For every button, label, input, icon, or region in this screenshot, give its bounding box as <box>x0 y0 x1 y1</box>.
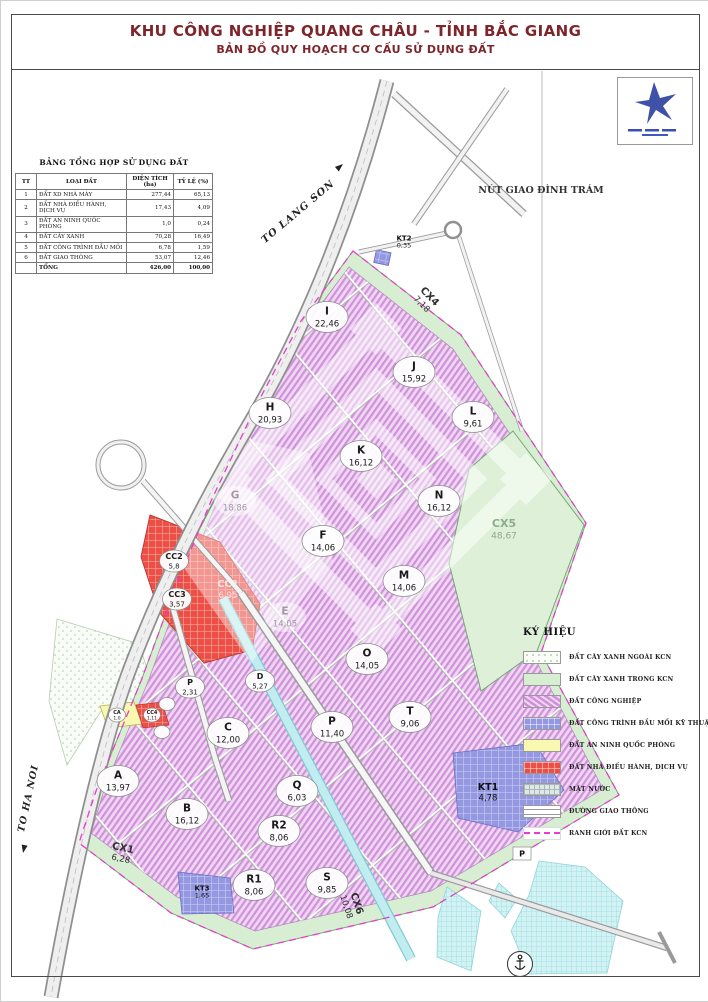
svg-text:CC4: CC4 <box>147 710 158 716</box>
svg-text:16,12: 16,12 <box>349 459 373 469</box>
svg-text:P: P <box>328 716 336 728</box>
svg-text:B: B <box>183 803 191 815</box>
parcel-i: I22,46 <box>306 302 348 333</box>
svg-text:S: S <box>323 872 331 884</box>
legend-swatch-industrial <box>523 695 561 708</box>
svg-text:4,78: 4,78 <box>479 794 498 804</box>
summary-cell <box>16 263 37 273</box>
summary-cell: 5 <box>16 242 37 252</box>
summary-row: 1ĐẤT XD NHÀ MÁY277,4465,13 <box>16 190 213 200</box>
legend-item-8: RANH GIỚI ĐẤT KCN <box>523 822 701 844</box>
svg-text:14,06: 14,06 <box>392 584 416 594</box>
to-ha-noi-arrow <box>20 845 28 854</box>
summary-cell: 6,78 <box>127 242 174 252</box>
legend-swatch-service <box>523 761 561 774</box>
to-lang-son-label: TO LANG SON <box>260 178 337 245</box>
svg-text:14,05: 14,05 <box>273 620 297 630</box>
svg-text:P: P <box>187 678 193 687</box>
summary-cell: 6 <box>16 253 37 263</box>
svg-text:TO LANG SON: TO LANG SON <box>260 178 337 245</box>
summary-cell: 4 <box>16 232 37 242</box>
parcel-g: G18,86 <box>214 486 256 516</box>
svg-text:A: A <box>114 770 123 782</box>
summary-cell: 2 <box>16 200 37 216</box>
svg-text:C: C <box>224 722 232 734</box>
svg-text:R1: R1 <box>246 874 261 886</box>
interchange-label: NÚT GIAO ĐÌNH TRÁM <box>478 184 604 196</box>
svg-text:CC2: CC2 <box>165 552 182 561</box>
summary-cell: 1,0 <box>127 216 174 232</box>
parcel-e: E14,05 <box>264 602 306 632</box>
parcel-m: M14,06 <box>383 566 425 597</box>
summary-col-2: DIỆN TÍCH (ha) <box>127 174 174 190</box>
parcel-l: L9,61 <box>452 402 494 433</box>
summary-table-title: BẢNG TỔNG HỢP SỬ DỤNG ĐẤT <box>15 158 213 167</box>
svg-text:Q: Q <box>293 780 302 792</box>
summary-cell: 426,00 <box>127 263 174 273</box>
svg-text:P: P <box>519 850 525 859</box>
parcel-r2: R28,06 <box>258 816 300 847</box>
summary-cell: ĐẤT AN NINH QUỐC PHÒNG <box>37 216 127 232</box>
parcel-n: N16,12 <box>418 486 460 517</box>
legend-item-4: ĐẤT AN NINH QUỐC PHÒNG <box>523 734 701 756</box>
svg-text:20,93: 20,93 <box>258 416 282 426</box>
svg-text:1,0: 1,0 <box>113 716 120 722</box>
summary-table-body: 1ĐẤT XD NHÀ MÁY277,4465,132ĐẤT NHÀ ĐIỀU … <box>16 190 213 273</box>
summary-cell: ĐẤT GIAO THÔNG <box>37 253 127 263</box>
legend-swatch-water-surface <box>523 783 561 796</box>
summary-cell: 17,43 <box>127 200 174 216</box>
summary-cell: 3 <box>16 216 37 232</box>
svg-text:5,8: 5,8 <box>168 563 179 571</box>
legend-swatch-boundary <box>523 827 561 840</box>
svg-text:1,65: 1,65 <box>195 892 209 900</box>
svg-text:O: O <box>363 648 372 660</box>
water-surface-2 <box>437 887 481 971</box>
parcel-d: D5,27 <box>246 670 275 692</box>
svg-text:L: L <box>470 406 477 418</box>
svg-text:M: M <box>399 570 409 582</box>
page-title: KHU CÔNG NGHIỆP QUANG CHÂU - TỈNH BẮC GI… <box>12 22 699 40</box>
to-lang-son-arrow <box>335 162 345 172</box>
summary-cell: ĐẤT XD NHÀ MÁY <box>37 190 127 200</box>
parcel-j: J15,92 <box>393 357 435 388</box>
summary-cell: 1 <box>16 190 37 200</box>
svg-text:6,95: 6,95 <box>219 591 238 601</box>
svg-text:16,12: 16,12 <box>427 504 451 514</box>
anchor-icon <box>508 952 533 977</box>
logo-glyph <box>618 78 690 142</box>
svg-text:9,06: 9,06 <box>401 720 420 730</box>
parcel-a: A13,97 <box>97 766 139 797</box>
summary-row: 3ĐẤT AN NINH QUỐC PHÒNG1,00,24 <box>16 216 213 232</box>
svg-text:6,03: 6,03 <box>288 794 307 804</box>
svg-text:I: I <box>325 306 329 318</box>
parcel-k: K16,12 <box>340 441 382 472</box>
parcel-b: B16,12 <box>166 799 208 830</box>
svg-text:5,27: 5,27 <box>252 683 268 691</box>
parcel-f: F14,06 <box>302 526 344 557</box>
map-svg: NÚT GIAO ĐÌNH TRÁM TO LANG SON TO HA NOI… <box>1 1 708 1001</box>
parcel-kt2: KT20,35 <box>396 235 411 250</box>
summary-cell: 12,46 <box>174 253 213 263</box>
legend-item-7: ĐƯỜNG GIAO THÔNG <box>523 800 701 822</box>
parcel-t: T9,06 <box>389 702 431 733</box>
summary-row: 4ĐẤT CÂY XANH70,2816,49 <box>16 232 213 242</box>
summary-col-1: LOẠI ĐẤT <box>37 174 127 190</box>
svg-text:1,11: 1,11 <box>147 716 157 722</box>
svg-text:8,06: 8,06 <box>245 888 264 898</box>
svg-text:15,92: 15,92 <box>402 375 426 385</box>
legend-item-6: MẶT NƯỚC <box>523 778 701 800</box>
title-block: KHU CÔNG NGHIỆP QUANG CHÂU - TỈNH BẮC GI… <box>11 14 700 70</box>
svg-text:D: D <box>257 672 264 681</box>
svg-text:N: N <box>435 490 444 502</box>
parcel-o: O14,05 <box>346 644 388 675</box>
parcel-r1: R18,06 <box>233 870 275 901</box>
logo <box>617 77 693 145</box>
svg-text:TO HA NOI: TO HA NOI <box>16 764 41 834</box>
parcel-c: C12,00 <box>207 718 249 749</box>
svg-text:CA: CA <box>113 710 121 716</box>
svg-text:22,46: 22,46 <box>315 320 339 330</box>
legend-item-2: ĐẤT CÔNG NGHIỆP <box>523 690 701 712</box>
summary-cell: 1,59 <box>174 242 213 252</box>
svg-text:16,12: 16,12 <box>175 817 199 827</box>
sheet: NÚT GIAO ĐÌNH TRÁM TO LANG SON TO HA NOI… <box>0 0 708 1002</box>
legend-label: ĐẤT CÔNG NGHIỆP <box>569 698 641 705</box>
svg-text:CX5: CX5 <box>492 517 516 530</box>
land-use-summary: BẢNG TỔNG HỢP SỬ DỤNG ĐẤT TTLOẠI ĐẤTDIỆN… <box>15 158 213 274</box>
legend-label: ĐẤT CÂY XANH TRONG KCN <box>569 676 673 683</box>
parcel-cx5: CX548,67 <box>491 517 517 542</box>
summary-cell: 4,09 <box>174 200 213 216</box>
page-subtitle: BẢN ĐỒ QUY HOẠCH CƠ CẤU SỬ DỤNG ĐẤT <box>12 43 699 56</box>
parcel-cc4: CC41,11 <box>144 708 161 722</box>
parcel-ca: CA1,0 <box>109 708 126 722</box>
svg-text:11,40: 11,40 <box>320 730 344 740</box>
legend-swatch-technical <box>523 717 561 730</box>
svg-text:2,31: 2,31 <box>182 689 198 697</box>
summary-cell: 100,00 <box>174 263 213 273</box>
parcel-s: S9,85 <box>306 868 348 899</box>
summary-col-0: TT <box>16 174 37 190</box>
summary-cell: 53,07 <box>127 253 174 263</box>
highway-loop-ramp <box>98 442 144 488</box>
legend-label: ĐẤT CÔNG TRÌNH ĐẦU MỐI KỸ THUẬT <box>569 720 708 727</box>
svg-text:F: F <box>319 530 326 542</box>
svg-text:18,86: 18,86 <box>223 504 247 514</box>
legend: KÝ HIỆU ĐẤT CÂY XANH NGOÀI KCNĐẤT CÂY XA… <box>523 627 701 844</box>
svg-text:H: H <box>266 402 275 414</box>
legend-label: ĐẤT NHÀ ĐIỀU HÀNH, DỊCH VỤ <box>569 764 688 771</box>
legend-item-3: ĐẤT CÔNG TRÌNH ĐẦU MỐI KỸ THUẬT <box>523 712 701 734</box>
svg-text:14,05: 14,05 <box>355 662 379 672</box>
summary-total-row: TỔNG426,00100,00 <box>16 263 213 273</box>
summary-cell: ĐẤT NHÀ ĐIỀU HÀNH, DỊCH VỤ <box>37 200 127 216</box>
parcel-kt3: KT31,65 <box>194 885 209 900</box>
legend-title: KÝ HIỆU <box>523 627 701 638</box>
legend-swatch-security <box>523 739 561 752</box>
svg-text:48,67: 48,67 <box>491 532 517 542</box>
summary-cell: ĐẤT CÔNG TRÌNH ĐẦU MỐI <box>37 242 127 252</box>
svg-text:9,61: 9,61 <box>464 420 483 430</box>
summary-cell: TỔNG <box>37 263 127 273</box>
roundabout <box>445 222 461 238</box>
parcel-kt1: KT14,78 <box>478 782 498 804</box>
svg-text:CC1: CC1 <box>217 579 239 590</box>
legend-swatch-green-outside <box>523 651 561 664</box>
parcel-p: P <box>513 847 531 860</box>
svg-text:9,85: 9,85 <box>318 886 337 896</box>
svg-text:G: G <box>231 490 240 502</box>
summary-cell: 65,13 <box>174 190 213 200</box>
legend-label: MẶT NƯỚC <box>569 786 610 793</box>
parcel-h: H20,93 <box>249 398 291 429</box>
legend-item-5: ĐẤT NHÀ ĐIỀU HÀNH, DỊCH VỤ <box>523 756 701 778</box>
summary-table-header: TTLOẠI ĐẤTDIỆN TÍCH (ha)TỶ LỆ (%) <box>16 174 213 190</box>
summary-row: 2ĐẤT NHÀ ĐIỀU HÀNH, DỊCH VỤ17,434,09 <box>16 200 213 216</box>
parcel-cc3: CC33,57 <box>163 588 192 610</box>
parcel-marker <box>154 726 170 739</box>
svg-text:J: J <box>411 361 416 373</box>
svg-text:K: K <box>357 445 366 457</box>
to-ha-noi-label: TO HA NOI <box>16 764 41 834</box>
legend-swatch-green-inside <box>523 673 561 686</box>
svg-text:CC3: CC3 <box>168 590 185 599</box>
summary-cell: 70,28 <box>127 232 174 242</box>
summary-row: 5ĐẤT CÔNG TRÌNH ĐẦU MỐI6,781,59 <box>16 242 213 252</box>
svg-text:KT1: KT1 <box>478 782 498 793</box>
svg-text:12,00: 12,00 <box>216 736 240 746</box>
legend-item-1: ĐẤT CÂY XANH TRONG KCN <box>523 668 701 690</box>
parcel-cc2: CC25,8 <box>160 550 189 572</box>
svg-text:R2: R2 <box>271 820 286 832</box>
legend-label: RANH GIỚI ĐẤT KCN <box>569 830 647 837</box>
summary-col-3: TỶ LỆ (%) <box>174 174 213 190</box>
legend-label: ĐƯỜNG GIAO THÔNG <box>569 808 649 815</box>
summary-table: TTLOẠI ĐẤTDIỆN TÍCH (ha)TỶ LỆ (%) 1ĐẤT X… <box>15 173 213 274</box>
parcel-q: Q6,03 <box>276 776 318 807</box>
technical-land-kt2 <box>374 250 391 266</box>
svg-text:3,57: 3,57 <box>169 601 185 609</box>
svg-text:8,06: 8,06 <box>270 834 289 844</box>
svg-text:13,97: 13,97 <box>106 784 130 794</box>
summary-cell: ĐẤT CÂY XANH <box>37 232 127 242</box>
parcel-p: P11,40 <box>311 712 353 743</box>
summary-cell: 277,44 <box>127 190 174 200</box>
svg-text:14,06: 14,06 <box>311 544 335 554</box>
parcel-p: P2,31 <box>176 676 205 698</box>
legend-label: ĐẤT CÂY XANH NGOÀI KCN <box>569 654 671 661</box>
legend-label: ĐẤT AN NINH QUỐC PHÒNG <box>569 742 675 749</box>
svg-text:0,35: 0,35 <box>397 242 411 250</box>
summary-row: 6ĐẤT GIAO THÔNG53,0712,46 <box>16 253 213 263</box>
svg-text:T: T <box>406 706 414 718</box>
legend-items: ĐẤT CÂY XANH NGOÀI KCNĐẤT CÂY XANH TRONG… <box>523 646 701 844</box>
legend-item-0: ĐẤT CÂY XANH NGOÀI KCN <box>523 646 701 668</box>
summary-cell: 16,49 <box>174 232 213 242</box>
parcel-marker <box>159 698 175 711</box>
summary-cell: 0,24 <box>174 216 213 232</box>
svg-text:E: E <box>281 606 288 618</box>
legend-swatch-road <box>523 805 561 818</box>
